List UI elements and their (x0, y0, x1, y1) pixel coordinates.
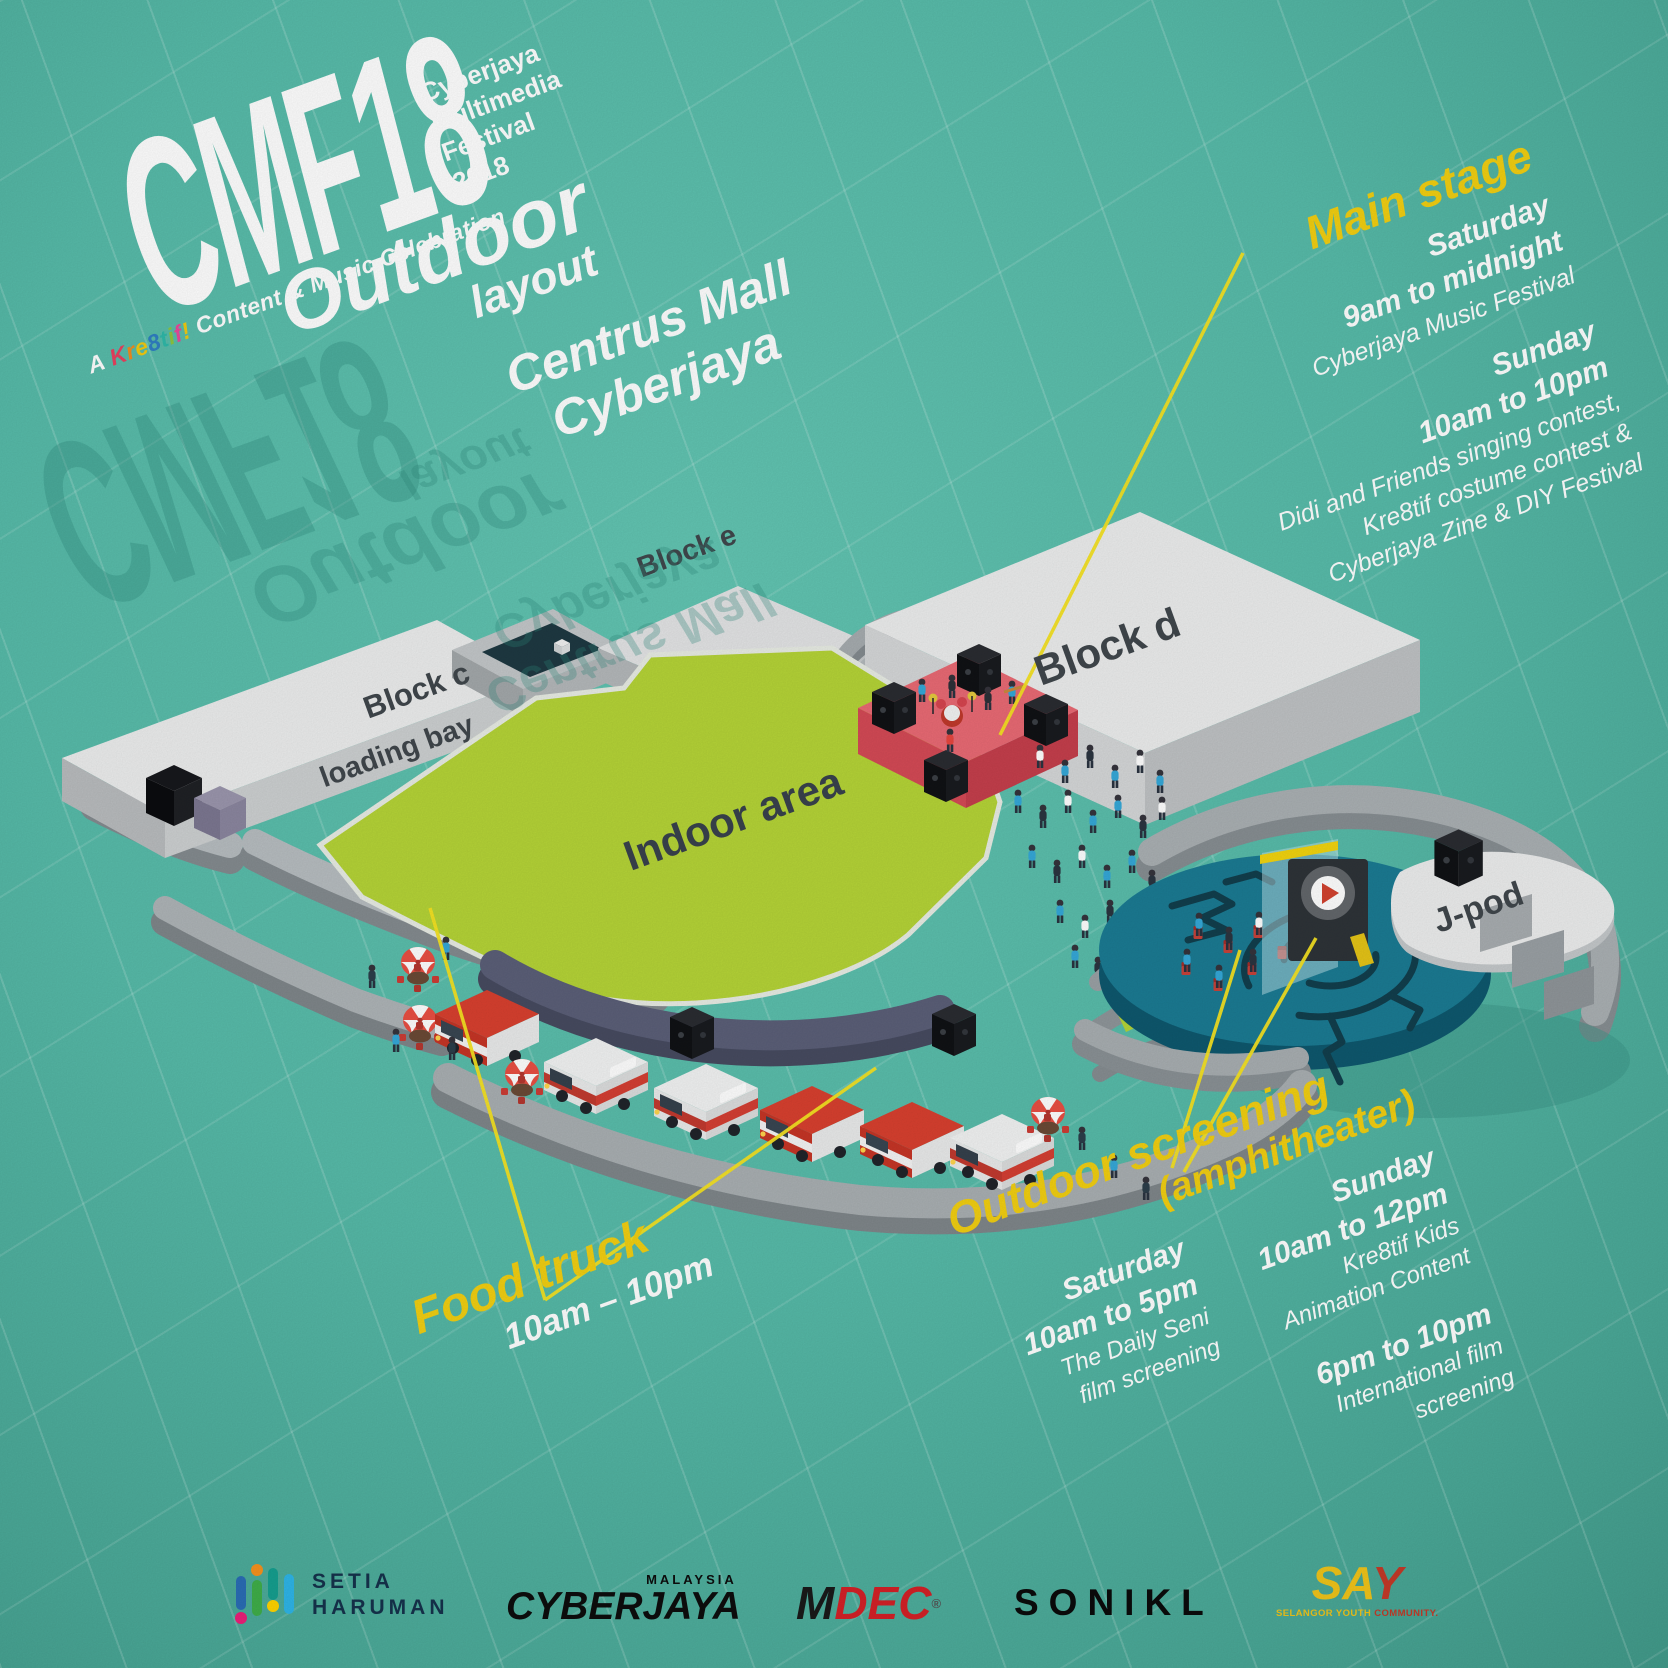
speaker-box (932, 1004, 976, 1056)
sponsor-setia-haruman: SETIA HARUMAN (234, 1562, 449, 1628)
poster-canvas: Block c loading bay Block e Block d Indo… (0, 0, 1668, 1668)
setia-haruman-icon (234, 1562, 300, 1628)
food-truck (860, 1102, 964, 1178)
sponsor-say: SAY SELANGOR YOUTH COMMUNITY. (1276, 1560, 1438, 1619)
speaker-box (670, 1007, 714, 1059)
speaker-box (1434, 829, 1482, 886)
sponsor-mdec: MDEC® (796, 1580, 941, 1626)
food-truck (654, 1064, 758, 1140)
food-truck (760, 1086, 864, 1162)
sponsor-cyberjaya: MALAYSIA CYBERJAYA (506, 1572, 741, 1626)
sponsor-sonikl: SONIKL (1014, 1582, 1214, 1624)
